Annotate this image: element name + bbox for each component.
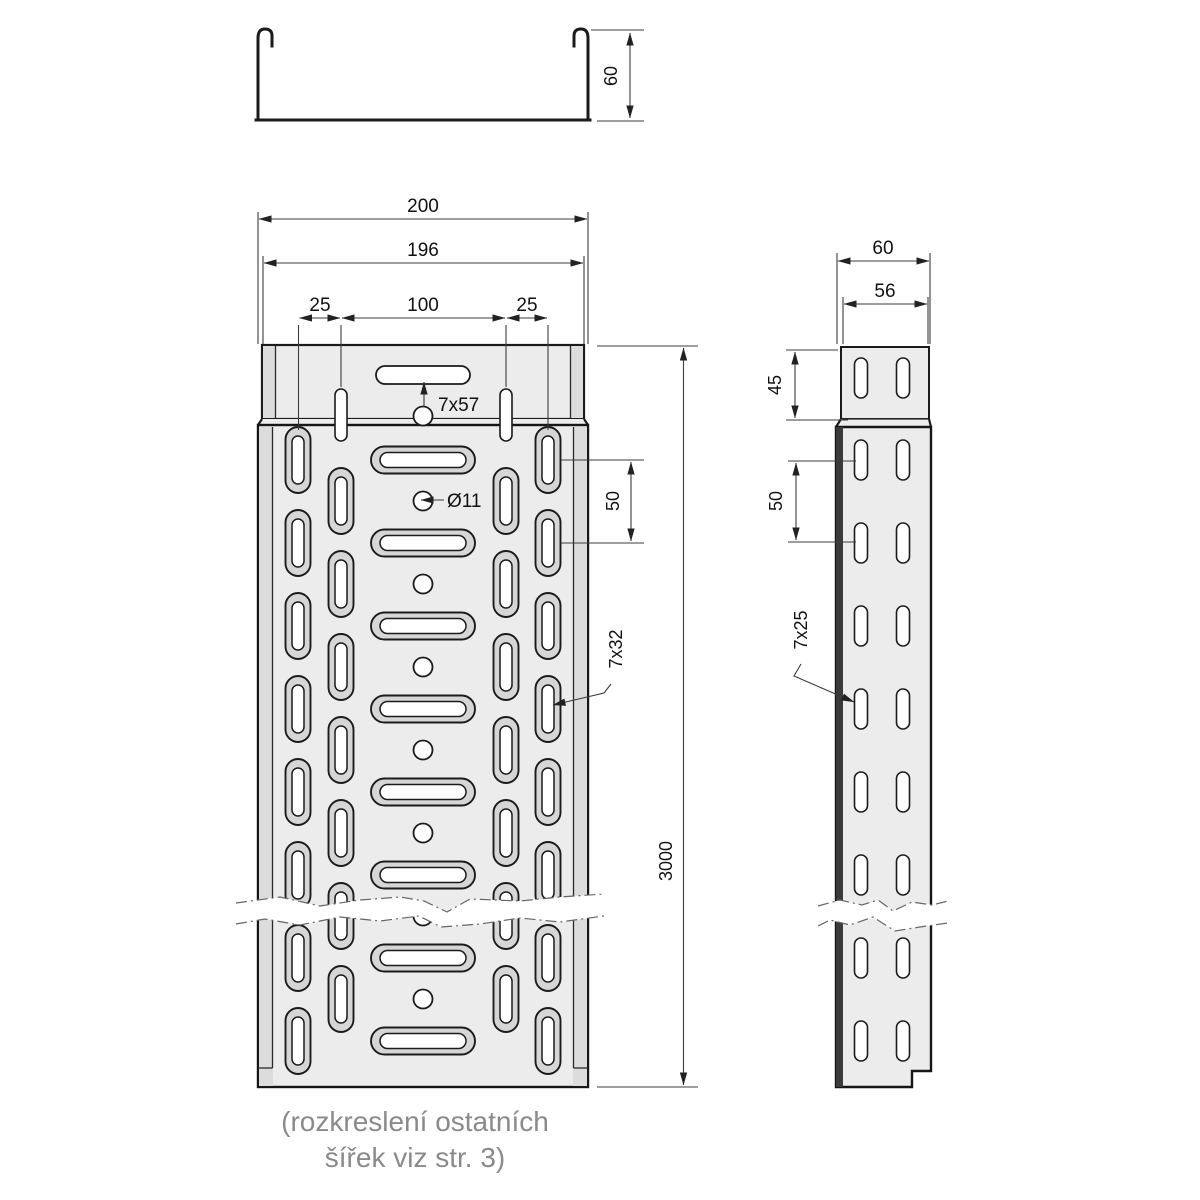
slot-7x32 <box>286 593 311 659</box>
slot-7x25 <box>897 523 910 563</box>
slot-7x25 <box>897 689 910 729</box>
drawing-page: 60 <box>0 0 1200 1200</box>
dim-side-coupling-width: 56 <box>874 281 895 302</box>
profile-outline-right <box>574 29 588 120</box>
side-edge-band <box>836 427 843 1087</box>
slot-7x25 <box>855 606 868 646</box>
slot-7x25 <box>897 1021 910 1061</box>
coupling-hole <box>414 407 433 426</box>
slot-7x32 <box>329 717 354 783</box>
slot-7x32 <box>329 468 354 534</box>
slot-7x25 <box>855 523 868 563</box>
slot-7x32 <box>286 427 311 493</box>
wall-band-left <box>259 427 273 1086</box>
dim-length: 3000 <box>656 841 676 881</box>
slot-7x32 <box>536 427 561 493</box>
slot-7x32 <box>494 966 519 1032</box>
dim-center-span: 100 <box>407 295 439 316</box>
hole-11 <box>414 658 433 677</box>
slot-7x25 <box>855 358 868 398</box>
caption-line-2: šířek viz str. 3) <box>325 1142 505 1173</box>
slot-7x32 <box>536 593 561 659</box>
slot-7x32 <box>536 1008 561 1074</box>
slot-7x25 <box>897 772 910 812</box>
coupling-slot-right <box>500 389 512 441</box>
hole-11 <box>414 824 433 843</box>
slot-7x32 <box>286 925 311 991</box>
plan-view <box>236 345 604 1087</box>
slot-7x32 <box>536 925 561 991</box>
dim-offset-left: 25 <box>309 295 330 316</box>
cross-section-view: 60 <box>256 29 644 121</box>
label-side-slot: 7x32 <box>606 629 626 668</box>
slot-7x57 <box>371 779 475 806</box>
slot-7x25 <box>855 1021 868 1061</box>
profile-outline <box>258 29 272 120</box>
coupling-wall-band-left <box>263 346 275 418</box>
dim-overall-width: 200 <box>407 196 439 217</box>
slot-7x32 <box>286 759 311 825</box>
slot-7x25 <box>855 440 868 480</box>
dim-section-height: 60 <box>601 66 621 86</box>
slot-7x57 <box>371 945 475 972</box>
slot-7x57 <box>371 613 475 640</box>
slot-7x32 <box>536 510 561 576</box>
coupling-slot-7x57 <box>376 366 470 384</box>
coupling-slot-left <box>335 389 347 441</box>
hole-11 <box>414 575 433 594</box>
wall-band-right <box>573 427 587 1086</box>
slot-7x32 <box>329 634 354 700</box>
dim-coupling-width: 196 <box>407 240 439 261</box>
dim-side-slot-pitch: 50 <box>766 491 786 511</box>
label-coupling-slot: 7x57 <box>438 395 479 416</box>
slot-7x32 <box>536 759 561 825</box>
slot-7x32 <box>494 800 519 866</box>
slot-7x32 <box>329 966 354 1032</box>
coupling-wall-band-right <box>571 346 583 418</box>
hole-11 <box>414 990 433 1009</box>
slot-7x32 <box>494 551 519 617</box>
slot-7x57 <box>371 530 475 557</box>
slot-7x25 <box>897 440 910 480</box>
slot-7x57 <box>371 862 475 889</box>
slot-7x25 <box>897 606 910 646</box>
slot-7x57 <box>371 696 475 723</box>
slot-7x32 <box>494 468 519 534</box>
slot-7x32 <box>286 510 311 576</box>
label-hole-diameter: Ø11 <box>447 491 482 512</box>
slot-7x32 <box>286 842 311 908</box>
hole-11 <box>414 741 433 760</box>
side-body <box>836 427 931 1087</box>
slot-7x32 <box>329 800 354 866</box>
side-view <box>818 347 948 1087</box>
slot-7x57 <box>371 447 475 474</box>
slot-7x25 <box>897 855 910 895</box>
dim-offset-right: 25 <box>516 295 537 316</box>
slot-7x32 <box>286 676 311 742</box>
slot-7x32 <box>494 717 519 783</box>
dim-coupling-height: 45 <box>765 375 785 395</box>
label-side-view-slot: 7x25 <box>791 610 811 649</box>
technical-drawing: 60 <box>0 0 1200 1200</box>
caption-line-1: (rozkreslení ostatních <box>281 1106 549 1137</box>
dim-slot-pitch: 50 <box>603 491 623 511</box>
slot-7x25 <box>897 938 910 978</box>
slot-7x25 <box>897 358 910 398</box>
slot-7x25 <box>855 855 868 895</box>
slot-7x25 <box>855 772 868 812</box>
dim-side-width: 60 <box>872 238 893 259</box>
slot-7x32 <box>536 676 561 742</box>
hole-11 <box>414 492 433 511</box>
slot-7x25 <box>855 689 868 729</box>
slot-7x57 <box>371 1028 475 1055</box>
slot-7x32 <box>494 634 519 700</box>
slot-7x32 <box>286 1008 311 1074</box>
slot-7x25 <box>855 938 868 978</box>
slot-7x32 <box>329 551 354 617</box>
